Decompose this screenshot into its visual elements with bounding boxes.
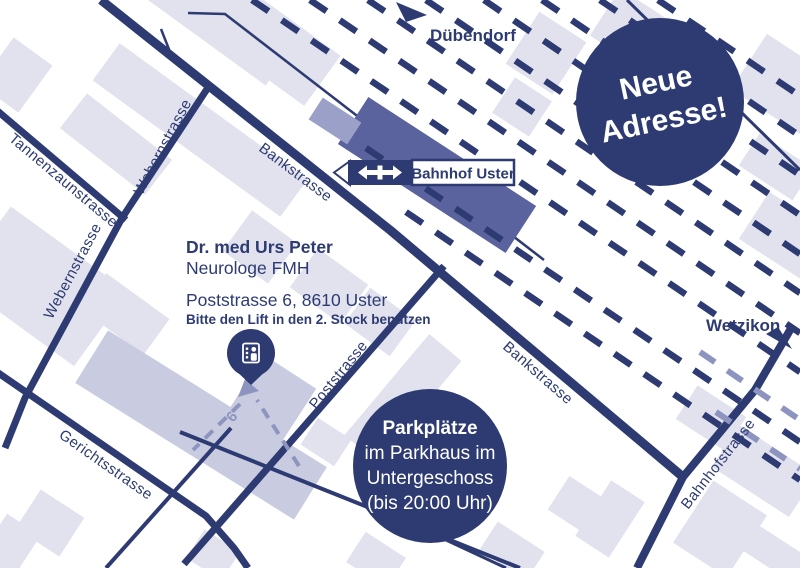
parking-line1: Parkplätze [382, 418, 477, 439]
practice-address: Poststrasse 6, 8610 Uster [186, 290, 388, 310]
station-name-label: Bahnhof Uster [411, 166, 515, 183]
station-sign: Bahnhof Uster [334, 160, 515, 185]
practice-specialty: Neurologe FMH [186, 258, 310, 278]
city-map: Bahnhof Uster 6 Tannenzaunstrasse Webern… [0, 0, 800, 568]
parking-line4: (bis 20:00 Uhr) [367, 493, 493, 514]
destination-label-east: Wetzikon [706, 316, 780, 335]
parking-circle [353, 389, 507, 543]
parking-badge: Parkplätze im Parkhaus im Untergeschoss … [353, 389, 507, 543]
sbb-logo-icon [358, 166, 402, 180]
parking-line3: Untergeschoss [367, 468, 494, 489]
new-address-badge: Neue Adresse! [576, 18, 744, 186]
practice-note: Bitte den Lift in den 2. Stock benützen [186, 312, 431, 327]
destination-label-north: Dübendorf [430, 26, 516, 45]
map-canvas: Bahnhof Uster 6 Tannenzaunstrasse Webern… [0, 0, 800, 568]
practice-name: Dr. med Urs Peter [186, 237, 333, 257]
parking-line2: im Parkhaus im [365, 443, 496, 464]
